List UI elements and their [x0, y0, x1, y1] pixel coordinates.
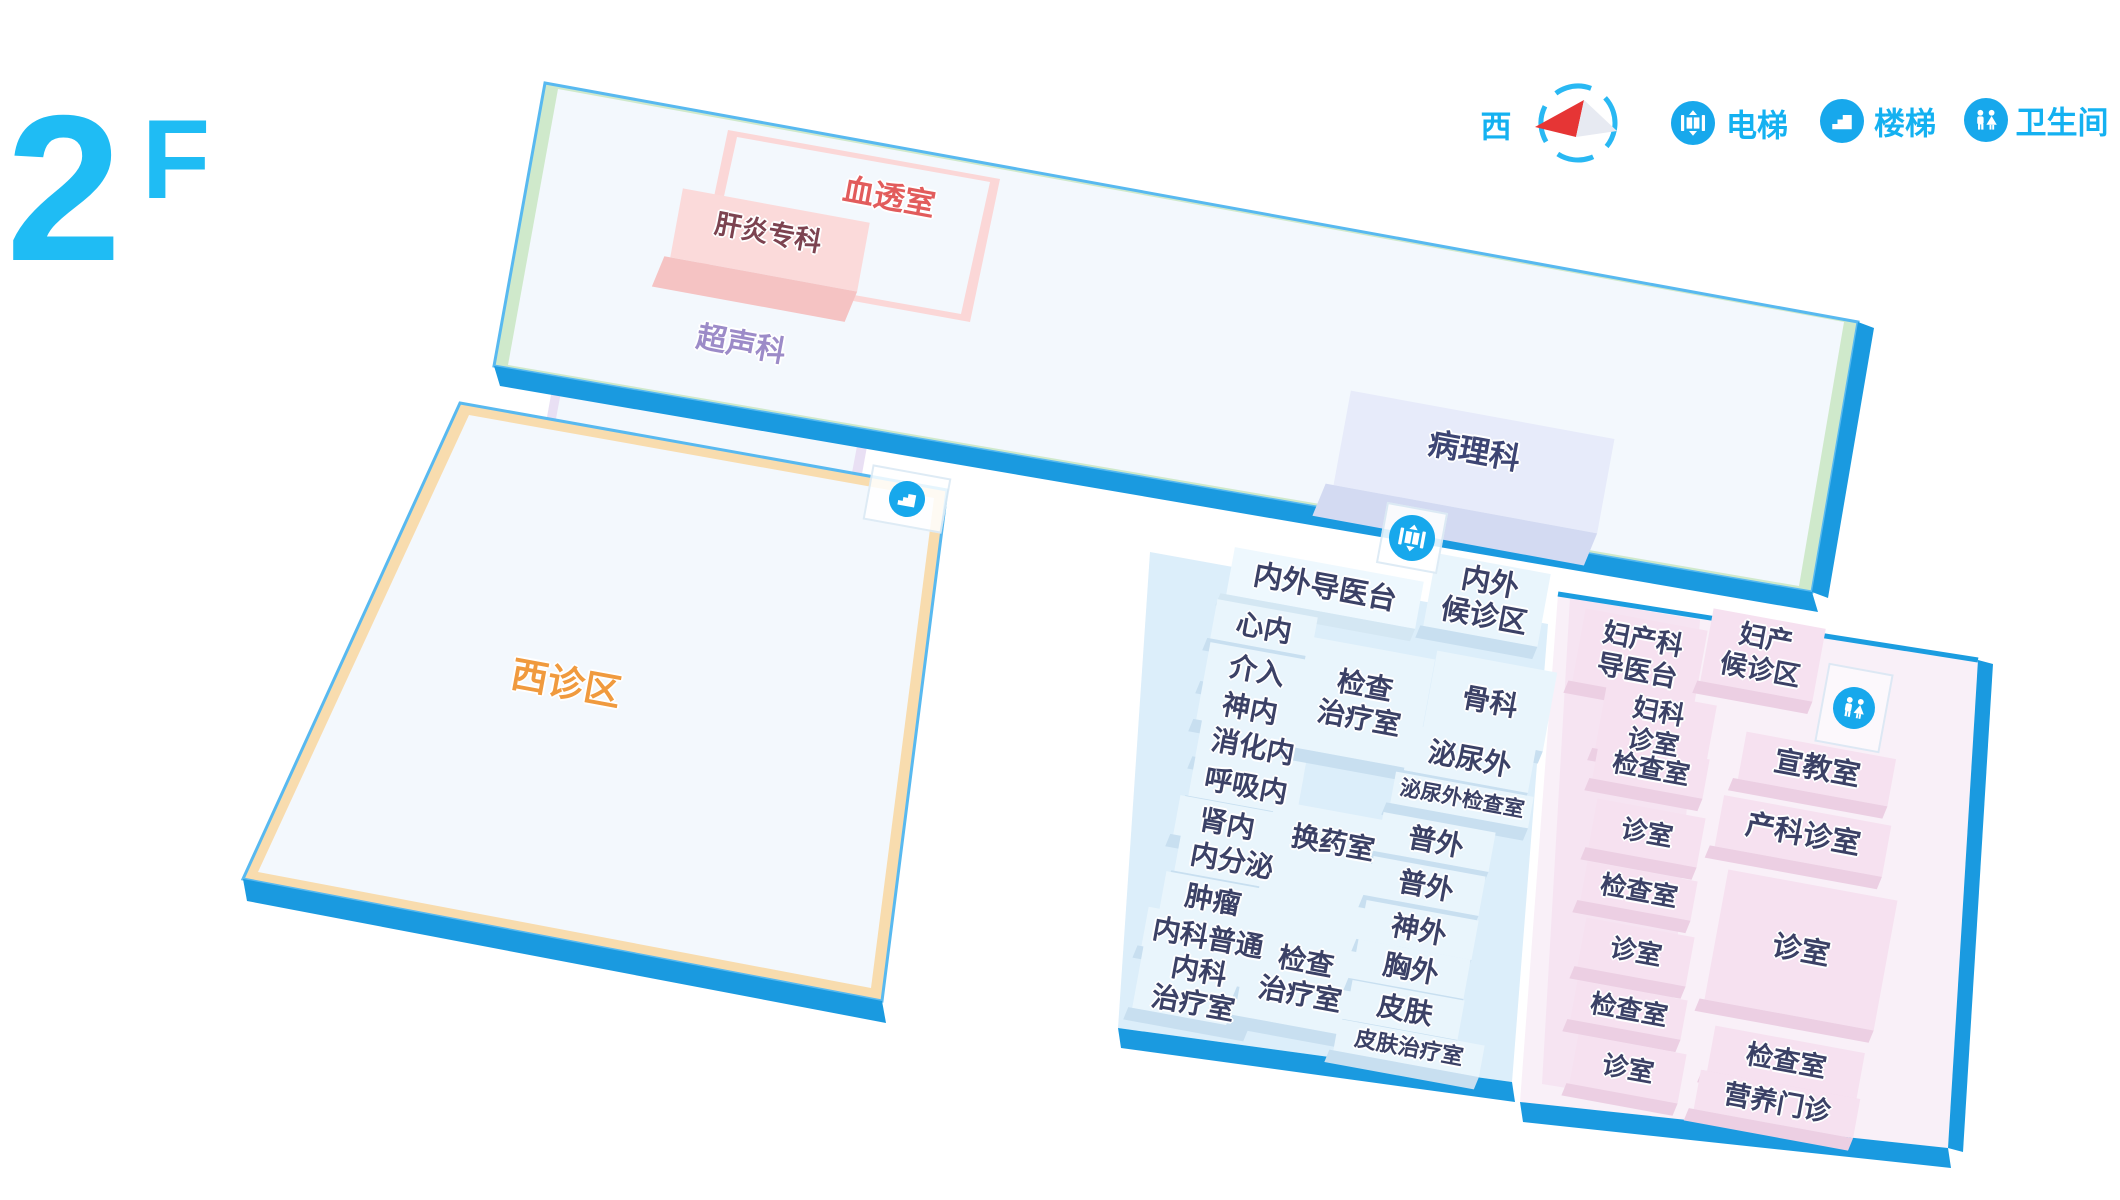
elevator-tile [1376, 502, 1448, 574]
west-building [243, 403, 947, 1023]
compass-icon [1526, 71, 1630, 175]
floor-suffix: F [142, 114, 210, 206]
stairs-legend-icon [1820, 99, 1864, 143]
stairs-legend-label: 楼梯 [1874, 99, 1936, 144]
floor-indicator: 2 F [6, 104, 210, 275]
compass-west-label: 西 [1481, 102, 1512, 147]
floor-number: 2 [6, 104, 122, 275]
restroom-icon [1830, 684, 1879, 733]
floor-map-page: 血透室 肝炎专科 超声科 病理科 西诊区 内外导医台 内外 候诊区 心内 介入 … [0, 0, 2120, 1200]
restroom-legend-icon [1964, 98, 2008, 142]
stairs-icon [886, 478, 928, 520]
elevator-legend-label: 电梯 [1726, 101, 1788, 146]
restroom-legend-label: 卫生间 [2016, 98, 2109, 143]
elevator-legend-icon [1671, 101, 1715, 145]
elevator-icon [1385, 511, 1439, 565]
